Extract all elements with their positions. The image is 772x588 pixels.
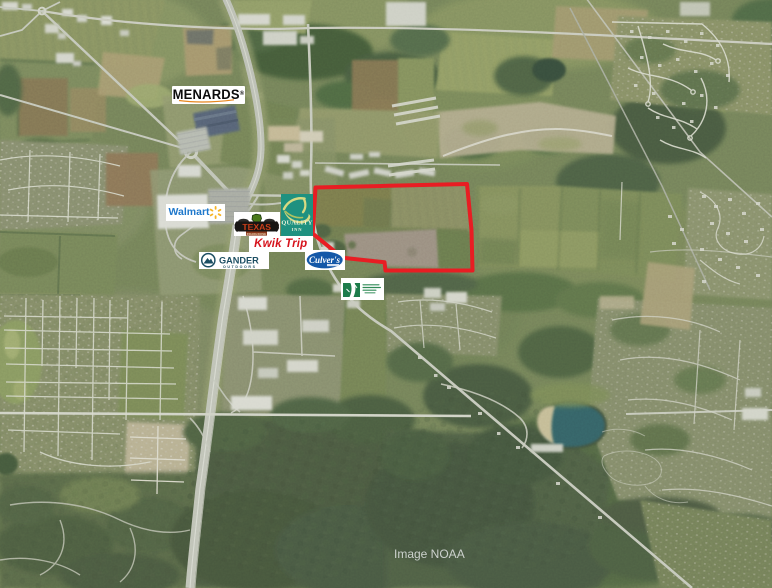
- svg-text:ROADHOUSE: ROADHOUSE: [247, 231, 267, 235]
- svg-text:QUALITY: QUALITY: [281, 219, 312, 226]
- svg-text:OUTDOORS: OUTDOORS: [223, 264, 257, 268]
- svg-text:Culver's: Culver's: [309, 255, 341, 265]
- svg-text:TEXAS: TEXAS: [242, 222, 271, 232]
- svg-text:INN: INN: [291, 227, 302, 232]
